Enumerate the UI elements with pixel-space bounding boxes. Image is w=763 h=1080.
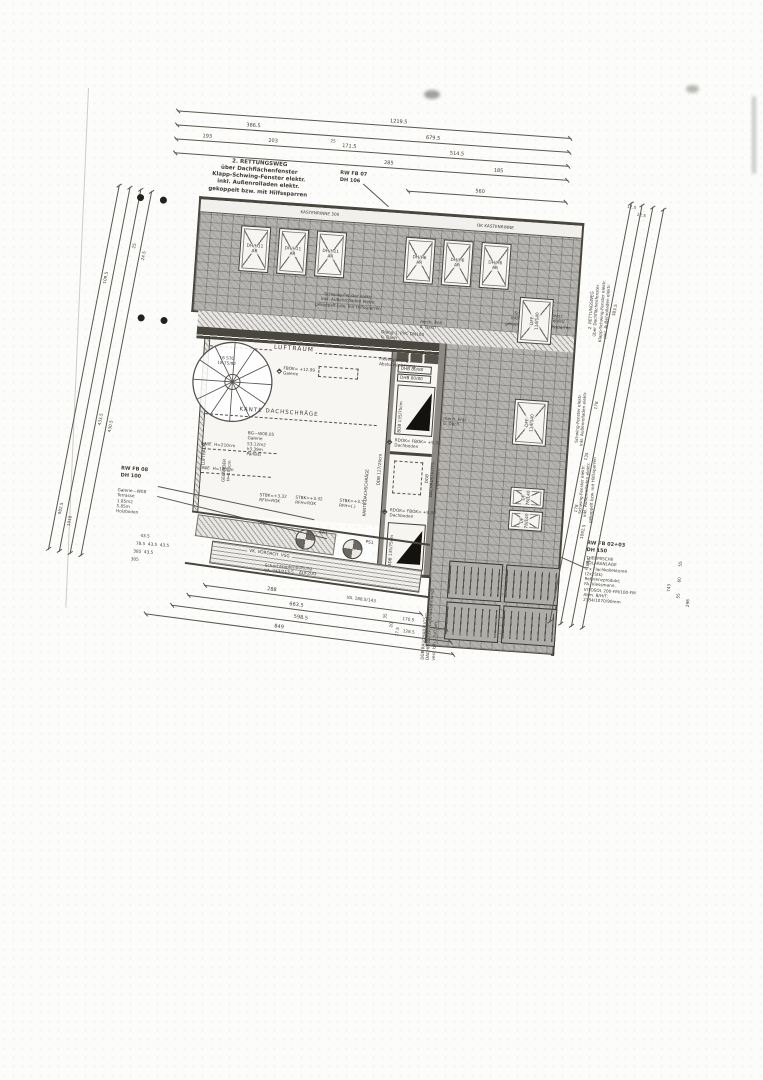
label-stbk-b: STBK=+3.32 RFH=ROK — [295, 495, 323, 507]
dim-value: 43.5 — [140, 533, 150, 539]
skylight-label: DH/H11 AR — [246, 243, 263, 254]
dim-value: 1848 — [584, 558, 591, 569]
dim-value: 679.5 — [426, 135, 441, 142]
skylight-label: DH/H11 AR — [284, 246, 301, 257]
skylight-label: DF 78/140 — [520, 513, 531, 529]
note-second-rescue-route: 2. RETTUNGSWEG über Dachflächenfenster K… — [202, 156, 316, 199]
room-label-terrasse: Galerie—W08 Terrasse 1.85m2 5.85m Holzbo… — [116, 487, 146, 515]
dim-value: 178 — [593, 401, 600, 410]
dim-value: 386.5 — [246, 122, 261, 129]
dim-value: 849 — [274, 623, 284, 631]
dim-chain-top-2 — [176, 124, 570, 153]
scan-smudge — [424, 90, 440, 99]
solar-collector-panel — [501, 605, 558, 647]
skylight-window: DH/H6 AR — [479, 242, 512, 290]
plan-group: 1219.5 386.5 679.5 193 203 25 171.5 514.… — [71, 54, 763, 738]
dim-value: 193 — [202, 133, 212, 140]
dim-value: 1092.5 — [579, 524, 587, 539]
label-dachaustritt: DGB DACHAUSTRITTS- FENSTER — [423, 457, 442, 502]
dim-value: 128.5 — [402, 628, 415, 635]
label-mech-entl-a: mech. Entl. ü. Dach — [420, 319, 444, 331]
ladder-wedge-icon — [404, 389, 433, 433]
skylight-window-dff: DFF 114/140 — [512, 399, 549, 447]
skylight-label: DH/H11 AR — [322, 249, 339, 260]
solar-collector-panel — [504, 564, 561, 606]
dim-line — [48, 185, 120, 550]
dim-value: 514.5 — [450, 151, 465, 158]
skylight-window: DH/H11 AR — [314, 230, 347, 278]
dim-value: 385 43.5 — [133, 548, 153, 555]
dim-value: 135 — [583, 452, 590, 461]
scan-dot — [160, 317, 167, 324]
dim-value: 433.5 — [97, 413, 104, 426]
solar-collector-panel — [447, 560, 504, 602]
leader-rw-fb07 — [363, 184, 389, 207]
dim-chain-top-5 — [407, 191, 567, 203]
skylight-window-df: DF 78/140 — [509, 487, 544, 509]
dim-value: 305 — [131, 556, 139, 562]
scan-streak — [752, 96, 756, 174]
dim-value: 24.5 — [140, 251, 147, 261]
scan-dot — [160, 196, 167, 203]
skylight-label: DF 78/140 — [521, 490, 532, 506]
skylight-label: DH/H6 AR — [412, 255, 427, 266]
skylight-label: DH/H6 AR — [488, 260, 503, 271]
skylight-label: DFF 114/140 — [530, 312, 542, 331]
dim-value: 55 — [678, 561, 684, 567]
dim-value: 12.5 — [627, 204, 637, 211]
skylight-window: DH/H6 AR — [441, 239, 474, 287]
dim-chain-top-1 — [177, 110, 571, 139]
dim-value: 430.5 — [107, 420, 114, 433]
roof-access-dashed-rect — [392, 460, 423, 495]
label-mech-entl-c: mech. Entl. ü. Dach — [443, 416, 467, 428]
dim-value: 78.5 43.5 43.5 — [136, 541, 170, 549]
dim-value: 743 — [666, 584, 672, 592]
skylight-window: DH/H6 AR — [403, 237, 436, 285]
skylight-label: DH/H6 AR — [450, 258, 465, 269]
dim-value: 55 — [675, 593, 681, 599]
skylight-window-dff: DFF 114/140 — [517, 297, 554, 345]
dim-value: 203 — [268, 138, 278, 145]
label-fbok-galerie: FBOK= +12.99 Galerie — [283, 365, 315, 378]
dim-value: 20 — [388, 622, 394, 628]
dim-chains-left: 25 24.5 109.5 433.5 430.5 982.5 1018 — [48, 185, 164, 559]
dim-value: 1219.5 — [390, 118, 408, 126]
skylight-window: DH/H11 AR — [238, 225, 271, 273]
dim-value: 185 — [494, 168, 504, 175]
vent-symbol-icon — [341, 538, 364, 561]
label-stbk-a: STBK=+3.32 RFH=ROK — [259, 492, 287, 504]
dim-value: 25 — [330, 138, 336, 144]
dim-value: 288 — [267, 586, 277, 594]
dim-value: 12.5 — [636, 212, 646, 219]
label-rw-fb08: RW FB 08 DH 100 — [120, 465, 148, 480]
label-stbk-c: STBK=+3.32 RFH=(.) — [339, 498, 367, 510]
dim-value: 560 — [475, 188, 485, 195]
dim-value: 35 — [382, 613, 388, 619]
dim-value: 178 — [573, 504, 580, 513]
dim-value: 109.5 — [102, 271, 109, 284]
skylight-window-df: DF 78/140 — [508, 510, 543, 532]
scanned-roof-plan-sheet: 1219.5 386.5 679.5 193 203 25 171.5 514.… — [0, 0, 763, 1080]
dim-value: 25 — [131, 243, 137, 249]
skylight-window: DH/H11 AR — [276, 228, 309, 276]
skylight-label: DFF 114/140 — [525, 414, 537, 433]
scan-dot — [137, 314, 144, 321]
dim-value: 60 — [677, 577, 683, 583]
dim-value: 1018 — [66, 515, 73, 526]
label-circle-a: AW1 — [318, 529, 328, 536]
dim-value: 285 — [384, 160, 394, 167]
dim-value: 170.5 — [402, 616, 415, 623]
dim-value: 171.5 — [342, 143, 357, 150]
dim-value: 298 — [685, 599, 691, 607]
dim-value: 982.5 — [57, 502, 64, 515]
scan-smudge — [686, 85, 699, 93]
label-circle-b: PS1 — [365, 539, 374, 545]
room-label-galerie: BG—W08.05 Galerie 53.12m2 h3.39m Parkett — [246, 430, 274, 458]
dim-value: 383.5 — [611, 304, 618, 317]
